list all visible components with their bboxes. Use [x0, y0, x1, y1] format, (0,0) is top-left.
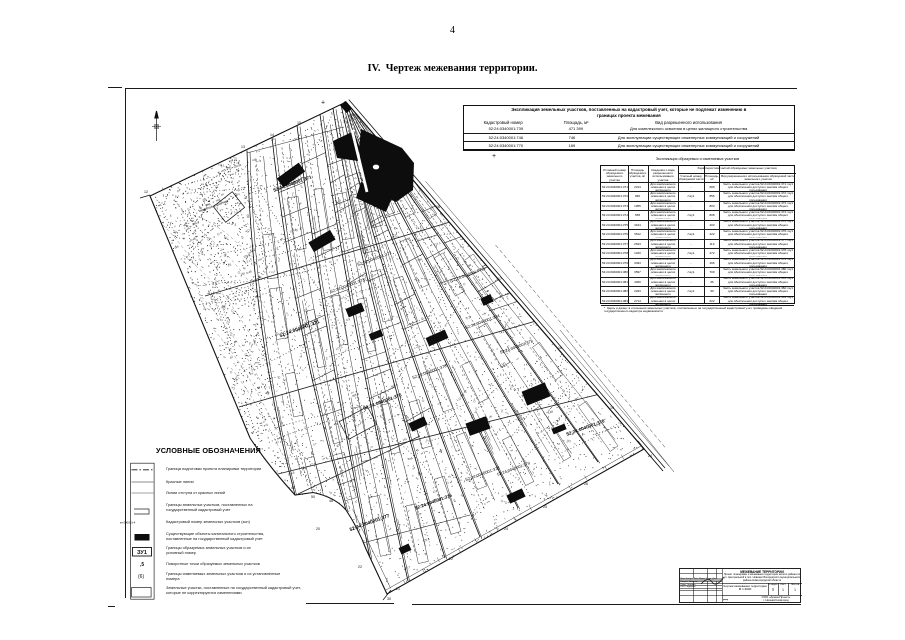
svg-text:19: 19: [610, 406, 614, 410]
svg-text:141: 141: [402, 437, 408, 443]
svg-text:127.5: 127.5: [335, 345, 343, 351]
svg-text:52:24:0040001:376: 52:24:0040001:376: [412, 363, 448, 380]
svg-text:52:24:0040001:372: 52:24:0040001:372: [357, 250, 393, 267]
svg-text:30: 30: [387, 597, 391, 601]
svg-text:141: 141: [501, 361, 507, 367]
svg-text:+: +: [492, 153, 496, 160]
svg-text:126.8: 126.8: [233, 163, 241, 169]
svg-text:24: 24: [504, 527, 508, 531]
svg-text:16: 16: [436, 205, 440, 209]
svg-text:12: 12: [144, 190, 148, 194]
svg-text:26: 26: [584, 482, 588, 486]
svg-text:ЗУ1: ЗУ1: [137, 550, 147, 556]
svg-text:кн 040001-4: кн 040001-4: [120, 521, 136, 525]
svg-text:2.17: 2.17: [466, 315, 473, 321]
svg-text:0.9: 0.9: [346, 317, 351, 322]
svg-text:(6): (6): [138, 574, 144, 580]
svg-text:,5: ,5: [140, 562, 144, 568]
svg-text:уч.: уч.: [216, 223, 221, 228]
svg-text:52:24:0040001:378: 52:24:0040001:378: [465, 465, 501, 482]
svg-text:1.2: 1.2: [233, 209, 238, 214]
svg-text:з.п.: з.п.: [247, 353, 253, 358]
svg-text:17: 17: [498, 277, 502, 281]
svg-text:25: 25: [543, 505, 547, 509]
svg-text:1.2: 1.2: [227, 262, 232, 267]
svg-text:22: 22: [449, 557, 453, 561]
svg-text:0.48: 0.48: [246, 269, 253, 275]
svg-text:15: 15: [297, 121, 301, 125]
svg-text:об.: об.: [488, 414, 493, 419]
svg-text:уч.: уч.: [219, 207, 224, 212]
svg-text:24: 24: [648, 454, 652, 458]
svg-text:141: 141: [257, 257, 263, 263]
svg-text:+: +: [321, 100, 325, 107]
svg-text:з.п.: з.п.: [249, 371, 255, 376]
svg-text:13: 13: [241, 145, 245, 149]
svg-text:50: 50: [311, 495, 315, 499]
svg-text:сار: сار: [271, 269, 276, 274]
svg-text:об.: об.: [220, 304, 225, 309]
svg-text:127.5: 127.5: [433, 241, 441, 247]
svg-text:(52:24:0040001:770): (52:24:0040001:770): [449, 266, 486, 284]
svg-text:18: 18: [558, 346, 562, 350]
svg-text:22: 22: [358, 565, 362, 569]
svg-text:52:24:0040001:373: 52:24:0040001:373: [330, 277, 366, 294]
svg-text:2.17: 2.17: [246, 258, 253, 264]
svg-text:1.2: 1.2: [220, 163, 225, 168]
svg-text:52:24:0040001:378: 52:24:0040001:378: [499, 338, 534, 355]
svg-text:0.48: 0.48: [547, 409, 554, 415]
svg-text:0.48: 0.48: [190, 236, 197, 242]
svg-text:сад: сад: [407, 456, 413, 461]
svg-text:сад: сад: [251, 157, 257, 162]
svg-text:14: 14: [270, 133, 274, 137]
svg-text:0.9: 0.9: [174, 244, 179, 249]
